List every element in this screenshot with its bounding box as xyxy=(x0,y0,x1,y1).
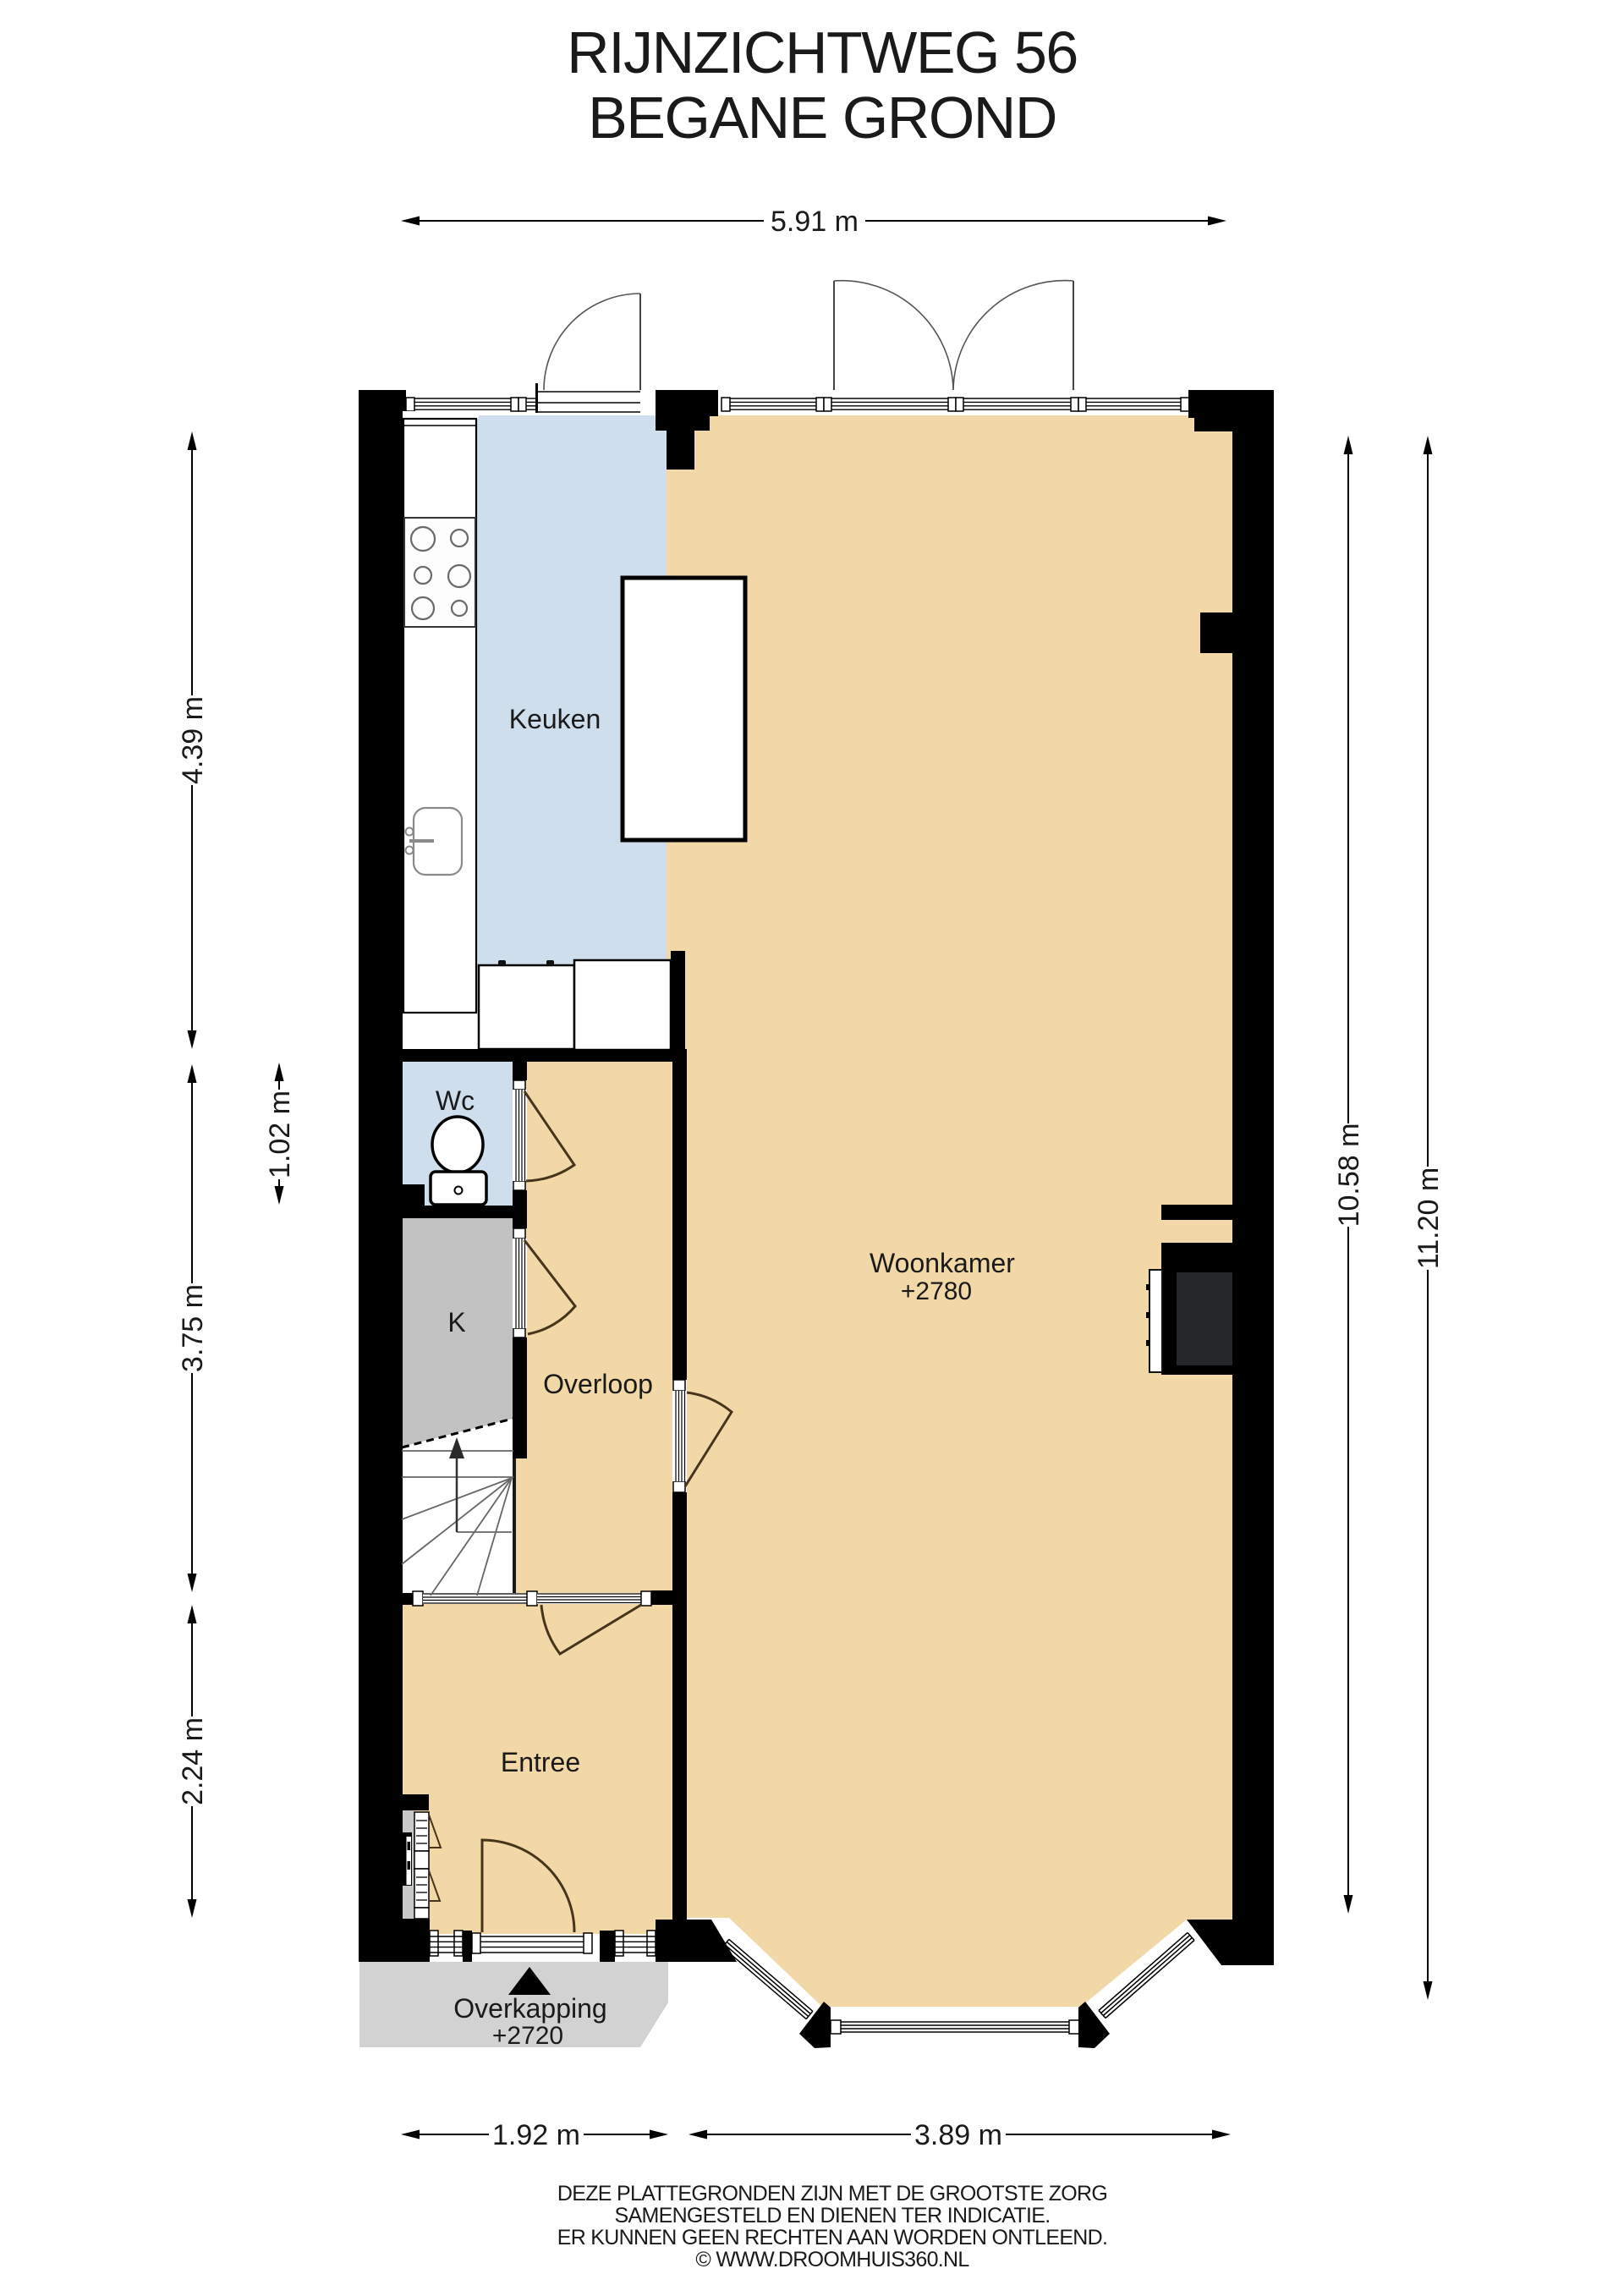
svg-text:3.89 m: 3.89 m xyxy=(914,2119,1002,2151)
svg-text:Overloop: Overloop xyxy=(543,1369,653,1399)
svg-text:3.75 m: 3.75 m xyxy=(177,1284,209,1372)
svg-text:© WWW.DROOMHUIS360.NL: © WWW.DROOMHUIS360.NL xyxy=(695,2248,969,2271)
svg-text:10.58 m: 10.58 m xyxy=(1333,1123,1365,1228)
svg-text:DEZE PLATTEGRONDEN ZIJN MET DE: DEZE PLATTEGRONDEN ZIJN MET DE GROOTSTE … xyxy=(557,2182,1107,2205)
svg-text:Woonkamer: Woonkamer xyxy=(870,1248,1015,1278)
svg-text:+2720: +2720 xyxy=(492,2022,563,2050)
svg-text:RIJNZICHTWEG 56: RIJNZICHTWEG 56 xyxy=(567,19,1078,85)
svg-text:2.24 m: 2.24 m xyxy=(177,1717,209,1805)
svg-text:BEGANE GROND: BEGANE GROND xyxy=(588,85,1056,151)
svg-text:ER KUNNEN GEEN RECHTEN AAN WOR: ER KUNNEN GEEN RECHTEN AAN WORDEN ONTLEE… xyxy=(557,2226,1108,2249)
svg-text:Keuken: Keuken xyxy=(509,704,601,734)
svg-text:1.92 m: 1.92 m xyxy=(492,2119,580,2151)
svg-text:K: K xyxy=(447,1307,465,1338)
svg-text:1.02 m: 1.02 m xyxy=(264,1090,296,1178)
svg-text:5.91 m: 5.91 m xyxy=(771,206,859,238)
svg-text:Wc: Wc xyxy=(436,1085,475,1116)
svg-text:SAMENGESTELD EN DIENEN TER IND: SAMENGESTELD EN DIENEN TER INDICATIE. xyxy=(615,2204,1051,2227)
svg-text:4.39 m: 4.39 m xyxy=(177,696,209,784)
svg-text:11.20 m: 11.20 m xyxy=(1413,1167,1445,1269)
svg-text:Entree: Entree xyxy=(501,1747,580,1777)
svg-text:+2780: +2780 xyxy=(901,1277,972,1305)
svg-text:Overkapping: Overkapping xyxy=(453,1993,606,2024)
